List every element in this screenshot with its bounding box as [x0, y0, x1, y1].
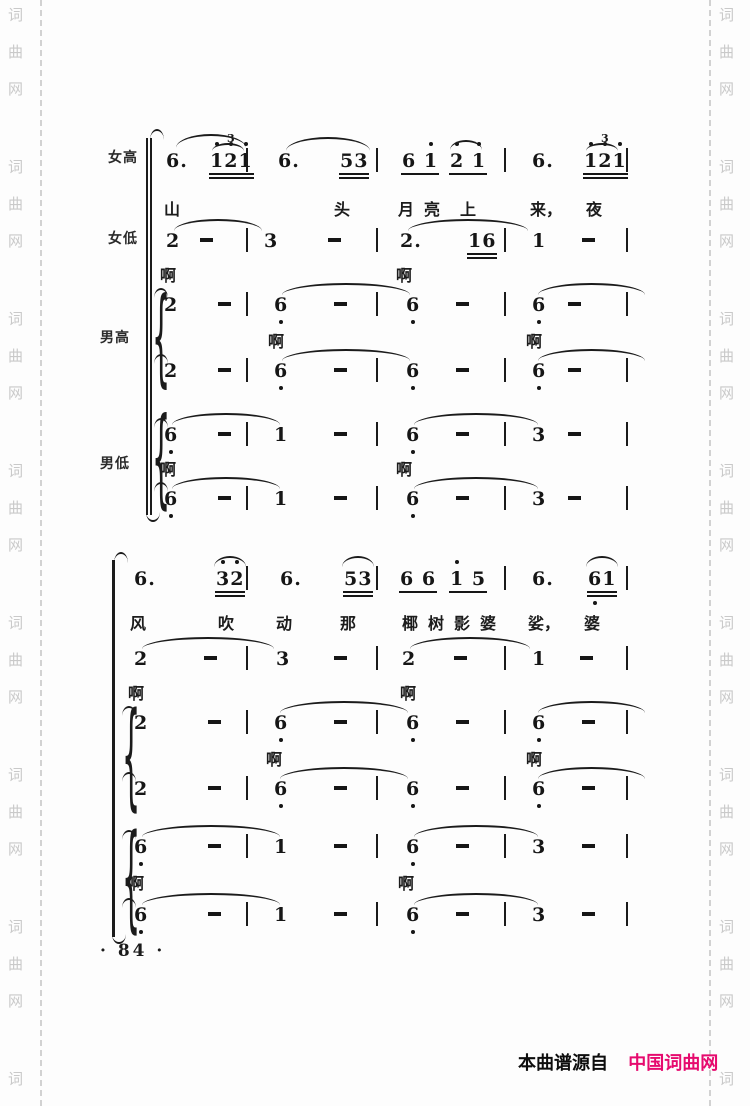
watermark-char: 词 — [8, 4, 23, 25]
slur-arc — [214, 556, 246, 567]
dash-prolong — [568, 368, 581, 372]
dash-prolong — [582, 238, 595, 242]
note-char: 3 — [532, 488, 546, 510]
slur-arc — [286, 137, 370, 151]
slur-arc — [414, 477, 538, 489]
barline — [246, 228, 248, 252]
slur-arc — [282, 349, 410, 361]
watermark-char: 词 — [8, 916, 23, 937]
watermark-char: 词 — [719, 308, 734, 329]
lyric-syllable: 动 — [276, 610, 292, 634]
note-token: 1 — [274, 488, 288, 510]
note-token: 1 — [274, 836, 288, 858]
note-token: 2 1 — [450, 150, 486, 172]
dash-prolong — [208, 720, 221, 724]
barline — [376, 710, 378, 734]
slur-arc — [342, 556, 374, 567]
note-char: 6 — [274, 712, 288, 734]
lyric-syllable: 头 — [334, 196, 350, 220]
note-token: 32 — [216, 568, 244, 590]
note-char — [464, 150, 472, 172]
barline — [626, 776, 628, 800]
slur-arc — [172, 477, 280, 489]
footer-credit-brand: 中国词曲网 — [628, 1053, 718, 1074]
note-char: 6 — [400, 568, 414, 590]
note-char: . — [414, 230, 422, 252]
lyric-syllable: 啊 — [160, 262, 176, 286]
note-token: 6 — [406, 488, 420, 510]
note-token: 1 — [532, 230, 546, 252]
note-token: 6 — [406, 424, 420, 446]
note-char: 5 — [340, 150, 354, 172]
lyric-syllable: 啊 — [400, 680, 416, 704]
note-char: 6 — [532, 294, 546, 316]
lyric-syllable: 啊 — [396, 262, 412, 286]
note-token: 2 — [166, 230, 180, 252]
barline — [246, 776, 248, 800]
slur-arc — [538, 767, 645, 779]
note-char: 3 — [532, 424, 546, 446]
watermark-char: 词 — [719, 1068, 734, 1089]
beam-underline — [583, 173, 628, 175]
lyric-syllable: 啊 — [266, 746, 282, 770]
dash-prolong — [334, 368, 347, 372]
beam-underline — [339, 177, 369, 179]
barline — [504, 358, 506, 382]
note-token: 1 5 — [450, 568, 486, 590]
watermark-char: 词 — [719, 4, 734, 25]
dash-prolong — [334, 844, 347, 848]
dash-prolong — [456, 432, 469, 436]
watermark-char: 词 — [719, 612, 734, 633]
slur-arc — [410, 637, 530, 649]
note-token: 6 — [134, 836, 148, 858]
lyric-syllable: 啊 — [398, 870, 414, 894]
note-token: 6 — [406, 778, 420, 800]
note-token: 3 — [532, 904, 546, 926]
note-char: 6 — [134, 568, 148, 590]
slur-arc — [280, 701, 408, 713]
note-char: 3 — [276, 648, 290, 670]
note-char: 6 — [406, 294, 420, 316]
dash-prolong — [334, 786, 347, 790]
note-token: 53 — [344, 568, 372, 590]
note-token: 61 — [588, 568, 616, 590]
slur-arc — [142, 637, 274, 649]
octave-dot-below — [139, 862, 143, 866]
note-char: 6 — [278, 150, 292, 172]
note-char: 1 — [450, 568, 464, 590]
beam-underline — [401, 173, 439, 175]
watermark-char: 曲 — [719, 649, 734, 670]
slur-arc — [414, 413, 538, 425]
note-char: 1 — [584, 150, 598, 172]
note-char: 2 — [134, 778, 148, 800]
watermark-char: 网 — [8, 990, 23, 1011]
octave-dot-below — [537, 738, 541, 742]
watermark-char: 网 — [719, 382, 734, 403]
barline — [246, 646, 248, 670]
watermark-char: 词 — [719, 156, 734, 177]
note-char: 3 — [532, 836, 546, 858]
slur-arc — [538, 701, 645, 713]
dash-prolong — [456, 302, 469, 306]
note-token: 53 — [340, 150, 368, 172]
beam-underline — [467, 253, 497, 255]
octave-dot-below — [279, 804, 283, 808]
barline — [504, 646, 506, 670]
watermark-char: 词 — [719, 764, 734, 785]
beam-underline — [343, 591, 373, 593]
barline — [626, 710, 628, 734]
octave-dot-below — [411, 804, 415, 808]
note-char: . — [180, 150, 188, 172]
watermark-char: 曲 — [719, 193, 734, 214]
octave-dot-below — [537, 804, 541, 808]
lyric-syllable: 啊 — [268, 328, 284, 352]
dash-prolong — [208, 844, 221, 848]
note-char: 2 — [224, 150, 238, 172]
note-char: . — [546, 568, 554, 590]
note-char: 1 — [468, 230, 482, 252]
dash-prolong — [200, 238, 213, 242]
octave-dot-below — [593, 601, 597, 605]
watermark-divider-left — [40, 0, 42, 1106]
watermark-char: 曲 — [719, 497, 734, 518]
barline — [246, 710, 248, 734]
lyric-syllable: 啊 — [526, 746, 542, 770]
note-char: 1 — [602, 568, 616, 590]
note-token: 6. — [532, 150, 554, 172]
watermark-char: 曲 — [8, 801, 23, 822]
octave-dot-below — [411, 514, 415, 518]
watermark-char: 网 — [8, 78, 23, 99]
barline — [504, 228, 506, 252]
beam-underline — [399, 591, 437, 593]
barline — [626, 358, 628, 382]
barline — [246, 834, 248, 858]
barline — [246, 902, 248, 926]
beam-underline — [343, 595, 373, 597]
barline — [504, 710, 506, 734]
voice-label: 男低 — [100, 453, 130, 473]
barline — [376, 358, 378, 382]
dash-prolong — [580, 656, 593, 660]
note-char: 3 — [354, 150, 368, 172]
barline — [504, 292, 506, 316]
lyric-syllable: 上 — [460, 196, 476, 220]
barline — [376, 834, 378, 858]
barline — [626, 292, 628, 316]
watermark-char: 曲 — [8, 41, 23, 62]
barline — [246, 148, 248, 172]
note-token: 6. — [166, 150, 188, 172]
barline — [504, 902, 506, 926]
note-char: 1 — [424, 150, 438, 172]
lyric-syllable: 娑， — [528, 610, 560, 634]
octave-dot-below — [279, 738, 283, 742]
octave-dot-below — [411, 930, 415, 934]
note-char: 3 — [216, 568, 230, 590]
dash-prolong — [568, 496, 581, 500]
barline — [376, 776, 378, 800]
slur-arc — [142, 825, 280, 837]
note-char: 6 — [422, 568, 436, 590]
lyric-syllable: 风 — [130, 610, 146, 634]
watermark-char: 网 — [719, 534, 734, 555]
dash-prolong — [568, 302, 581, 306]
note-token: 2 — [402, 648, 416, 670]
note-char: 6 — [482, 230, 496, 252]
dash-prolong — [334, 432, 347, 436]
watermark-char: 网 — [719, 990, 734, 1011]
note-token: 3 — [264, 230, 278, 252]
dash-prolong — [582, 912, 595, 916]
barline — [376, 486, 378, 510]
lyric-syllable: 啊 — [526, 328, 542, 352]
dash-prolong — [456, 496, 469, 500]
lyric-syllable: 月 — [398, 196, 414, 220]
dash-prolong — [456, 844, 469, 848]
note-token: 1 — [532, 648, 546, 670]
barline — [626, 566, 628, 590]
watermark-char: 网 — [8, 382, 23, 403]
note-token: 1 — [274, 904, 288, 926]
dash-prolong — [328, 238, 341, 242]
voice-label: 男高 — [100, 327, 130, 347]
watermark-char: 词 — [8, 764, 23, 785]
note-char: 3 — [264, 230, 278, 252]
lyric-syllable: 山 — [164, 196, 180, 220]
lyric-syllable: 夜 — [586, 196, 602, 220]
note-token: 6 — [532, 360, 546, 382]
beam-underline — [587, 591, 617, 593]
watermark-char: 词 — [8, 308, 23, 329]
dash-prolong — [456, 912, 469, 916]
dash-prolong — [582, 786, 595, 790]
watermark-char: 网 — [8, 838, 23, 859]
beam-underline — [449, 591, 487, 593]
note-token: 6 — [274, 712, 288, 734]
watermark-char: 曲 — [8, 497, 23, 518]
note-char: 6 — [406, 712, 420, 734]
lyric-syllable: 影 — [454, 610, 470, 634]
barline — [376, 566, 378, 590]
octave-dot-below — [279, 386, 283, 390]
barline — [504, 776, 506, 800]
note-token: 6 6 — [400, 568, 436, 590]
watermark-char: 网 — [8, 230, 23, 251]
watermark-char: 网 — [719, 686, 734, 707]
dash-prolong — [334, 912, 347, 916]
dash-prolong — [454, 656, 467, 660]
dash-prolong — [334, 496, 347, 500]
note-token: 6 — [532, 712, 546, 734]
beam-underline — [583, 177, 628, 179]
watermark-char: 词 — [8, 460, 23, 481]
note-token: 6. — [134, 568, 156, 590]
system-barline — [146, 138, 148, 515]
slur-arc — [114, 552, 128, 563]
beam-underline — [339, 173, 369, 175]
barline — [246, 566, 248, 590]
lyric-syllable: 婆 — [584, 610, 600, 634]
beam-underline — [215, 591, 245, 593]
note-char: 6 — [532, 360, 546, 382]
note-token: 6 — [274, 294, 288, 316]
note-token: 6 — [134, 904, 148, 926]
slur-arc — [586, 143, 618, 151]
note-char — [416, 150, 424, 172]
watermark-char: 曲 — [719, 41, 734, 62]
beam-underline — [449, 173, 487, 175]
note-char: 1 — [274, 836, 288, 858]
dash-prolong — [218, 302, 231, 306]
watermark-divider-right — [709, 0, 711, 1106]
barline — [246, 358, 248, 382]
dash-prolong — [334, 302, 347, 306]
octave-dot-above — [455, 560, 459, 564]
barline — [246, 486, 248, 510]
dash-prolong — [568, 432, 581, 436]
beam-underline — [215, 595, 245, 597]
dash-prolong — [334, 656, 347, 660]
barline — [626, 422, 628, 446]
lyric-syllable: 啊 — [128, 680, 144, 704]
octave-dot-above — [618, 142, 622, 146]
note-char: 6 — [166, 150, 180, 172]
page-number: · 84 · — [100, 941, 165, 961]
footer-credit: 本曲谱源自 中国词曲网 — [518, 1049, 718, 1075]
footer-credit-prefix: 本曲谱源自 — [518, 1053, 608, 1074]
watermark-char: 网 — [719, 78, 734, 99]
octave-dot-below — [169, 514, 173, 518]
note-char: . — [292, 150, 300, 172]
note-token: 6 — [532, 778, 546, 800]
note-char — [414, 568, 422, 590]
beam-underline — [467, 257, 497, 259]
note-token: 2 — [134, 648, 148, 670]
slur-arc — [538, 349, 645, 361]
note-char: 6 — [588, 568, 602, 590]
watermark-char: 网 — [8, 686, 23, 707]
note-char: 6 — [532, 150, 546, 172]
note-token: 6 1 — [402, 150, 438, 172]
dash-prolong — [218, 368, 231, 372]
beam-underline — [587, 595, 617, 597]
note-char: 6 — [532, 712, 546, 734]
octave-dot-below — [279, 320, 283, 324]
barline — [626, 486, 628, 510]
note-token: 2 — [134, 778, 148, 800]
dash-prolong — [456, 786, 469, 790]
octave-dot-below — [411, 450, 415, 454]
slur-arc — [414, 825, 538, 837]
system-barline — [112, 560, 115, 937]
barline — [504, 148, 506, 172]
watermark-char: 词 — [719, 916, 734, 937]
slur-arc — [586, 556, 618, 567]
slur-arc — [538, 283, 645, 295]
note-char: 6 — [406, 488, 420, 510]
note-char: 5 — [472, 568, 486, 590]
note-char: 6 — [134, 904, 148, 926]
octave-dot-below — [537, 386, 541, 390]
note-token: 6 — [406, 712, 420, 734]
note-char: 2 — [134, 648, 148, 670]
note-char: 1 — [210, 150, 224, 172]
dash-prolong — [456, 368, 469, 372]
note-char: . — [148, 568, 156, 590]
note-char: 6 — [406, 904, 420, 926]
voice-label: 女低 — [108, 228, 138, 248]
watermark-char: 词 — [719, 460, 734, 481]
note-char: 6 — [274, 778, 288, 800]
lyric-syllable: 啊 — [160, 456, 176, 480]
lyric-syllable: 亮 — [424, 196, 440, 220]
note-token: 1 — [274, 424, 288, 446]
slur-arc — [172, 413, 280, 425]
note-token: 3 — [532, 424, 546, 446]
dash-prolong — [334, 720, 347, 724]
note-char: . — [294, 568, 302, 590]
barline — [246, 422, 248, 446]
barline — [246, 292, 248, 316]
barline — [626, 834, 628, 858]
note-char: 3 — [532, 904, 546, 926]
watermark-char: 曲 — [719, 953, 734, 974]
note-token: 2. — [400, 230, 422, 252]
barline — [376, 292, 378, 316]
dash-prolong — [208, 912, 221, 916]
note-token: 1213 — [584, 150, 627, 172]
note-char: 6 — [274, 360, 288, 382]
octave-dot-below — [411, 862, 415, 866]
note-char: 1 — [612, 150, 626, 172]
note-token: 2 — [134, 712, 148, 734]
lyric-syllable: 椰 — [402, 610, 418, 634]
octave-dot-below — [139, 930, 143, 934]
octave-dot-below — [169, 450, 173, 454]
barline — [376, 646, 378, 670]
lyric-syllable: 那 — [340, 610, 356, 634]
lyric-syllable: 吹 — [218, 610, 234, 634]
note-char: 1 — [472, 150, 486, 172]
lyric-syllable: 树 — [428, 610, 444, 634]
octave-dot-below — [411, 386, 415, 390]
note-char: 2 — [598, 150, 612, 172]
barline — [626, 228, 628, 252]
barline — [376, 228, 378, 252]
note-token: 6 — [406, 904, 420, 926]
note-char: 6 — [280, 568, 294, 590]
watermark-char: 曲 — [719, 801, 734, 822]
octave-dot-below — [537, 320, 541, 324]
watermark-char: 网 — [8, 534, 23, 555]
lyric-syllable: 啊 — [128, 870, 144, 894]
lyric-syllable: 来， — [530, 196, 562, 220]
barline — [626, 646, 628, 670]
lyric-syllable: 啊 — [396, 456, 412, 480]
watermark-char: 曲 — [719, 345, 734, 366]
barline — [626, 902, 628, 926]
note-char: 6 — [402, 150, 416, 172]
slur-arc — [414, 893, 538, 905]
note-char: 2 — [134, 712, 148, 734]
note-char: 2 — [230, 568, 244, 590]
dash-prolong — [204, 656, 217, 660]
note-token: 3 — [532, 488, 546, 510]
